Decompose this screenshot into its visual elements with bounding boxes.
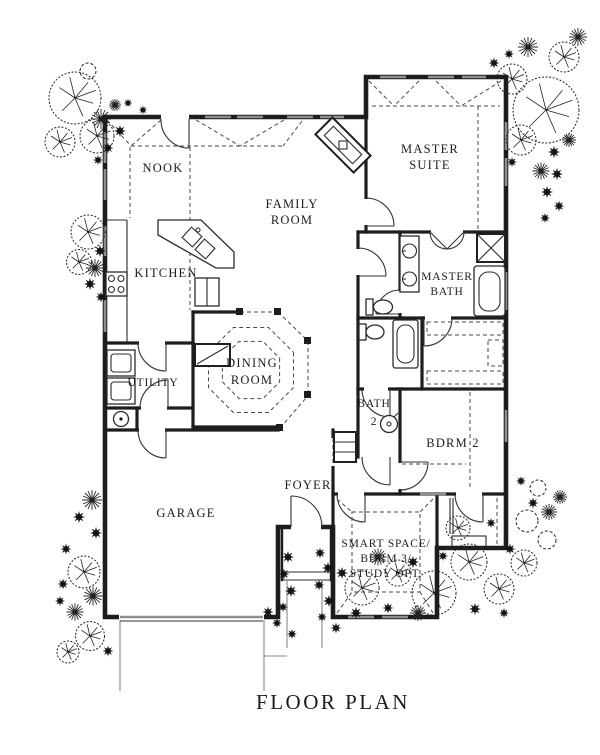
shrub-icon bbox=[518, 37, 538, 57]
bush-icon bbox=[554, 201, 565, 212]
closet-rod-dashes bbox=[427, 322, 503, 384]
landscaping-top-right bbox=[489, 28, 588, 223]
bush-icon bbox=[541, 186, 553, 198]
shrub-icon bbox=[569, 28, 587, 46]
shrub-icon bbox=[410, 605, 426, 621]
bush-icon bbox=[548, 146, 560, 158]
bush-icon bbox=[336, 567, 348, 579]
master-vanity bbox=[400, 236, 419, 292]
room-label-bath2-2: 2 bbox=[371, 416, 378, 428]
room-label-bedroom2: BDRM 2 bbox=[426, 436, 479, 450]
toilet-icon bbox=[366, 299, 393, 315]
room-labels: NOOK FAMILY ROOM MASTER SUITE KITCHEN MA… bbox=[128, 142, 480, 580]
washer-icon bbox=[107, 350, 135, 376]
tree-icon bbox=[45, 127, 75, 157]
bush-icon bbox=[90, 527, 102, 539]
pantry-cabinet bbox=[195, 344, 230, 366]
shrub-icon bbox=[67, 604, 84, 621]
bush-icon bbox=[315, 548, 326, 559]
landscaping-top-left bbox=[45, 63, 148, 165]
toilet-icon bbox=[359, 324, 384, 340]
bush-icon bbox=[272, 618, 282, 628]
tree-icon bbox=[484, 574, 514, 604]
bush-icon bbox=[287, 629, 297, 639]
bush-icon bbox=[322, 562, 334, 574]
master-suite-door-swing bbox=[366, 198, 394, 226]
tree-icon bbox=[76, 622, 105, 651]
bush-icon bbox=[263, 607, 274, 618]
bush-icon bbox=[489, 58, 500, 69]
room-label-smart-space-2: BDRM 3/ bbox=[360, 553, 411, 565]
bush-icon bbox=[499, 608, 509, 618]
bush-icon bbox=[139, 106, 148, 115]
room-label-dining-2: ROOM bbox=[231, 373, 273, 387]
garage-entry-door-swing bbox=[138, 430, 166, 458]
refrigerator-icon bbox=[195, 278, 219, 306]
hall-door-swing bbox=[358, 248, 386, 276]
tree-icon bbox=[530, 480, 546, 496]
bush-icon bbox=[551, 168, 563, 180]
bush-icon bbox=[383, 603, 394, 614]
tree-icon bbox=[68, 556, 100, 588]
tree-icon bbox=[71, 215, 105, 249]
room-label-master-suite-2: SUITE bbox=[409, 158, 450, 172]
room-label-bath2-1: BATH bbox=[357, 398, 390, 410]
shrub-icon bbox=[86, 259, 104, 277]
shrub-icon bbox=[82, 490, 102, 510]
room-label-kitchen: KITCHEN bbox=[134, 266, 197, 280]
bush-icon bbox=[84, 278, 96, 290]
bush-icon bbox=[486, 518, 496, 528]
bush-icon bbox=[103, 646, 114, 657]
bush-icon bbox=[323, 595, 335, 607]
bush-icon bbox=[469, 603, 481, 615]
shrub-icon bbox=[84, 587, 103, 606]
bush-icon bbox=[505, 544, 516, 555]
patio-door-swing bbox=[455, 494, 483, 522]
bush-icon bbox=[504, 49, 514, 59]
bathtub-icon bbox=[474, 266, 505, 316]
room-label-nook: NOOK bbox=[143, 161, 184, 175]
bush-icon bbox=[516, 476, 526, 486]
bush-icon bbox=[507, 157, 517, 167]
room-label-family-room-1: FAMILY bbox=[266, 197, 319, 211]
smart-space-door-swing bbox=[337, 494, 365, 522]
range-icon bbox=[106, 272, 127, 296]
bush-icon bbox=[73, 511, 85, 523]
bush-icon bbox=[61, 544, 72, 555]
bush-icon bbox=[282, 551, 294, 563]
bush-icon bbox=[540, 213, 550, 223]
linen-closet bbox=[334, 432, 356, 462]
entry-door-swing bbox=[291, 496, 322, 527]
tree-icon bbox=[516, 510, 538, 532]
shrub-icon bbox=[533, 163, 550, 180]
shrub-icon bbox=[553, 490, 567, 504]
floor-plan-drawing: NOOK FAMILY ROOM MASTER SUITE KITCHEN MA… bbox=[0, 0, 600, 755]
water-heater-icon bbox=[114, 412, 129, 427]
bush-icon bbox=[114, 125, 126, 137]
tree-icon bbox=[80, 63, 96, 79]
room-label-utility: UTILITY bbox=[128, 377, 179, 389]
shrub-icon bbox=[109, 99, 121, 111]
bush-icon bbox=[55, 596, 65, 606]
utility-north-door-swing bbox=[138, 343, 166, 371]
fireplace-icon bbox=[315, 117, 370, 172]
tree-icon bbox=[538, 531, 556, 549]
door-swings bbox=[138, 119, 483, 527]
nook-door-swing bbox=[161, 119, 189, 148]
room-label-master-bath-2: BATH bbox=[430, 286, 463, 298]
room-label-master-suite-1: MASTER bbox=[401, 142, 459, 156]
room-label-dining-1: DINING bbox=[226, 356, 278, 370]
tree-icon bbox=[57, 641, 79, 663]
bush-icon bbox=[331, 623, 342, 634]
shrub-icon bbox=[562, 133, 576, 147]
tree-icon bbox=[49, 72, 101, 124]
bath2-hall-door-swing bbox=[362, 457, 390, 485]
shower-icon bbox=[477, 234, 505, 262]
bush-icon bbox=[314, 580, 325, 591]
bush-icon bbox=[103, 143, 114, 154]
bush-icon bbox=[94, 245, 106, 257]
tree-icon bbox=[511, 550, 537, 576]
bush-icon bbox=[278, 602, 288, 612]
floor-plan-page: NOOK FAMILY ROOM MASTER SUITE KITCHEN MA… bbox=[0, 0, 600, 755]
landscaping-walkway bbox=[263, 548, 342, 640]
kitchen-island bbox=[158, 220, 234, 268]
bush-icon bbox=[350, 607, 362, 619]
room-label-foyer: FOYER bbox=[285, 478, 332, 492]
bush-icon bbox=[124, 99, 133, 108]
bush-icon bbox=[528, 498, 539, 509]
bush-icon bbox=[58, 579, 69, 590]
tree-icon bbox=[549, 42, 579, 72]
room-label-master-bath-1: MASTER bbox=[421, 271, 472, 283]
shrub-icon bbox=[91, 109, 111, 129]
bush-icon bbox=[438, 551, 448, 561]
bathtub-icon bbox=[393, 320, 418, 368]
porch-steps bbox=[282, 572, 331, 580]
bush-icon bbox=[407, 556, 419, 568]
driveway-lines bbox=[120, 620, 264, 691]
patio-post bbox=[450, 498, 453, 534]
bush-icon bbox=[279, 569, 290, 580]
bush-icon bbox=[317, 612, 327, 622]
room-label-smart-space-1: SMART SPACE/ bbox=[341, 538, 430, 550]
bedroom2-door-swing bbox=[400, 462, 428, 490]
bush-icon bbox=[96, 292, 107, 303]
room-label-garage: GARAGE bbox=[156, 506, 215, 520]
dining-octagon-ceiling bbox=[209, 328, 294, 413]
landscaping-left-middle bbox=[67, 215, 107, 303]
room-label-family-room-2: ROOM bbox=[271, 213, 313, 227]
plan-title: FLOOR PLAN bbox=[256, 690, 410, 714]
shrub-icon bbox=[541, 504, 557, 520]
bush-icon bbox=[93, 155, 103, 165]
bush-icon bbox=[285, 585, 297, 597]
